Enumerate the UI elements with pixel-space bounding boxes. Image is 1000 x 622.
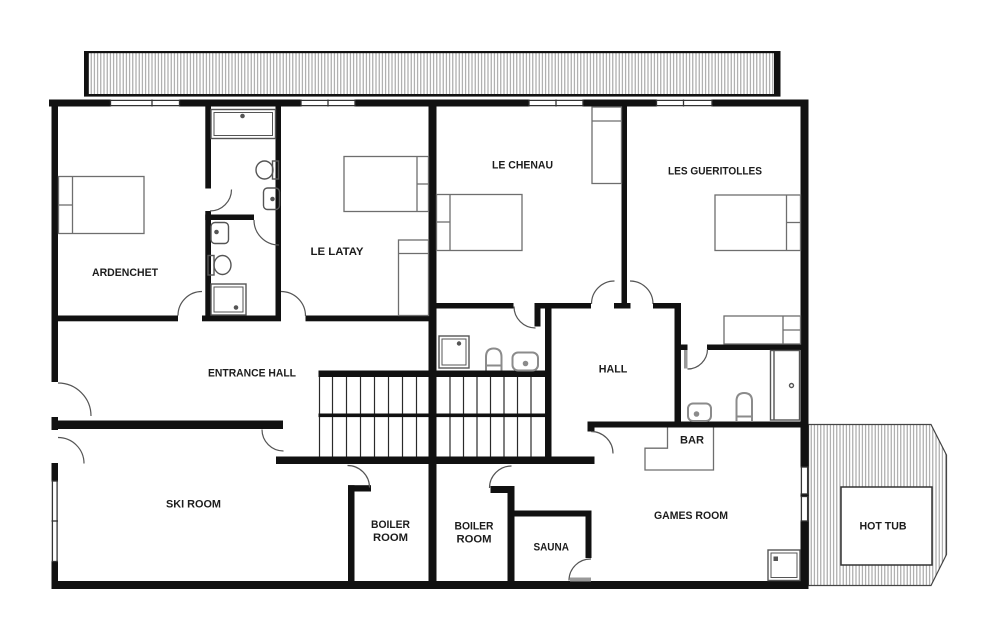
svg-text:ROOM: ROOM [373, 532, 408, 544]
svg-text:HALL: HALL [599, 364, 628, 376]
svg-text:LES GUERITOLLES: LES GUERITOLLES [668, 166, 762, 178]
svg-text:ARDENCHET: ARDENCHET [92, 267, 158, 279]
svg-text:LE CHENAU: LE CHENAU [492, 160, 553, 172]
svg-text:LE LATAY: LE LATAY [311, 246, 365, 258]
svg-text:GAMES ROOM: GAMES ROOM [654, 510, 728, 522]
svg-text:ROOM: ROOM [457, 534, 492, 546]
svg-text:BAR: BAR [680, 435, 704, 447]
svg-text:BOILER: BOILER [455, 521, 494, 533]
svg-text:SAUNA: SAUNA [533, 542, 569, 554]
svg-text:SKI ROOM: SKI ROOM [166, 498, 221, 510]
svg-text:BOILER: BOILER [371, 519, 410, 531]
svg-text:ENTRANCE HALL: ENTRANCE HALL [208, 368, 296, 380]
svg-text:HOT TUB: HOT TUB [860, 520, 907, 532]
